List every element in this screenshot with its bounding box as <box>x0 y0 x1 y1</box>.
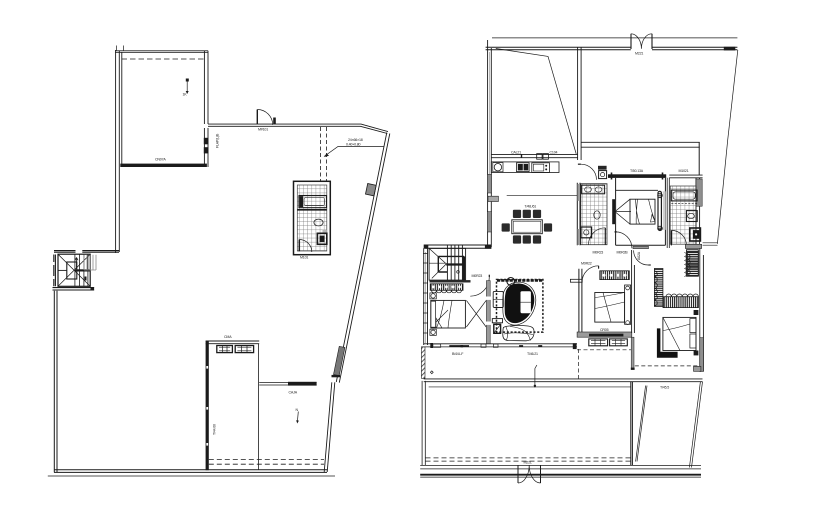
svg-text:24×66×18: 24×66×18 <box>348 138 363 142</box>
svg-text:T/45.5: T/45.5 <box>660 386 669 390</box>
svg-text:CR05: CR05 <box>600 328 609 332</box>
svg-text:M1021: M1021 <box>679 169 689 173</box>
svg-text:C104: C104 <box>550 151 558 155</box>
svg-text:T/48./61: T/48./61 <box>525 205 537 209</box>
svg-text:M22L: M22L <box>524 461 532 465</box>
svg-text:B/44.LF: B/44.LF <box>452 352 464 356</box>
svg-text:CMA: CMA <box>224 335 232 339</box>
svg-text:A02A: A02A <box>637 251 641 260</box>
svg-text:M0R2B: M0R2B <box>617 251 629 255</box>
svg-text:CN07A: CN07A <box>155 158 166 162</box>
svg-text:CAJA: CAJA <box>289 391 298 395</box>
svg-text:0.40×0.80: 0.40×0.80 <box>346 143 360 147</box>
svg-text:T/46.21: T/46.21 <box>527 352 538 356</box>
svg-text:CAL21: CAL21 <box>511 151 521 155</box>
svg-text:M221: M221 <box>635 52 643 56</box>
svg-text:FLAP(L)B: FLAP(L)B <box>216 133 220 148</box>
svg-text:M0R23: M0R23 <box>593 251 604 255</box>
svg-text:T/50.13A: T/50.13A <box>630 169 644 173</box>
svg-text:T/44.00: T/44.00 <box>213 424 217 435</box>
svg-text:M0R22: M0R22 <box>581 262 592 266</box>
svg-text:M#101: M#101 <box>258 128 268 132</box>
svg-text:M101: M101 <box>300 256 308 260</box>
svg-text:M0R23: M0R23 <box>472 274 483 278</box>
